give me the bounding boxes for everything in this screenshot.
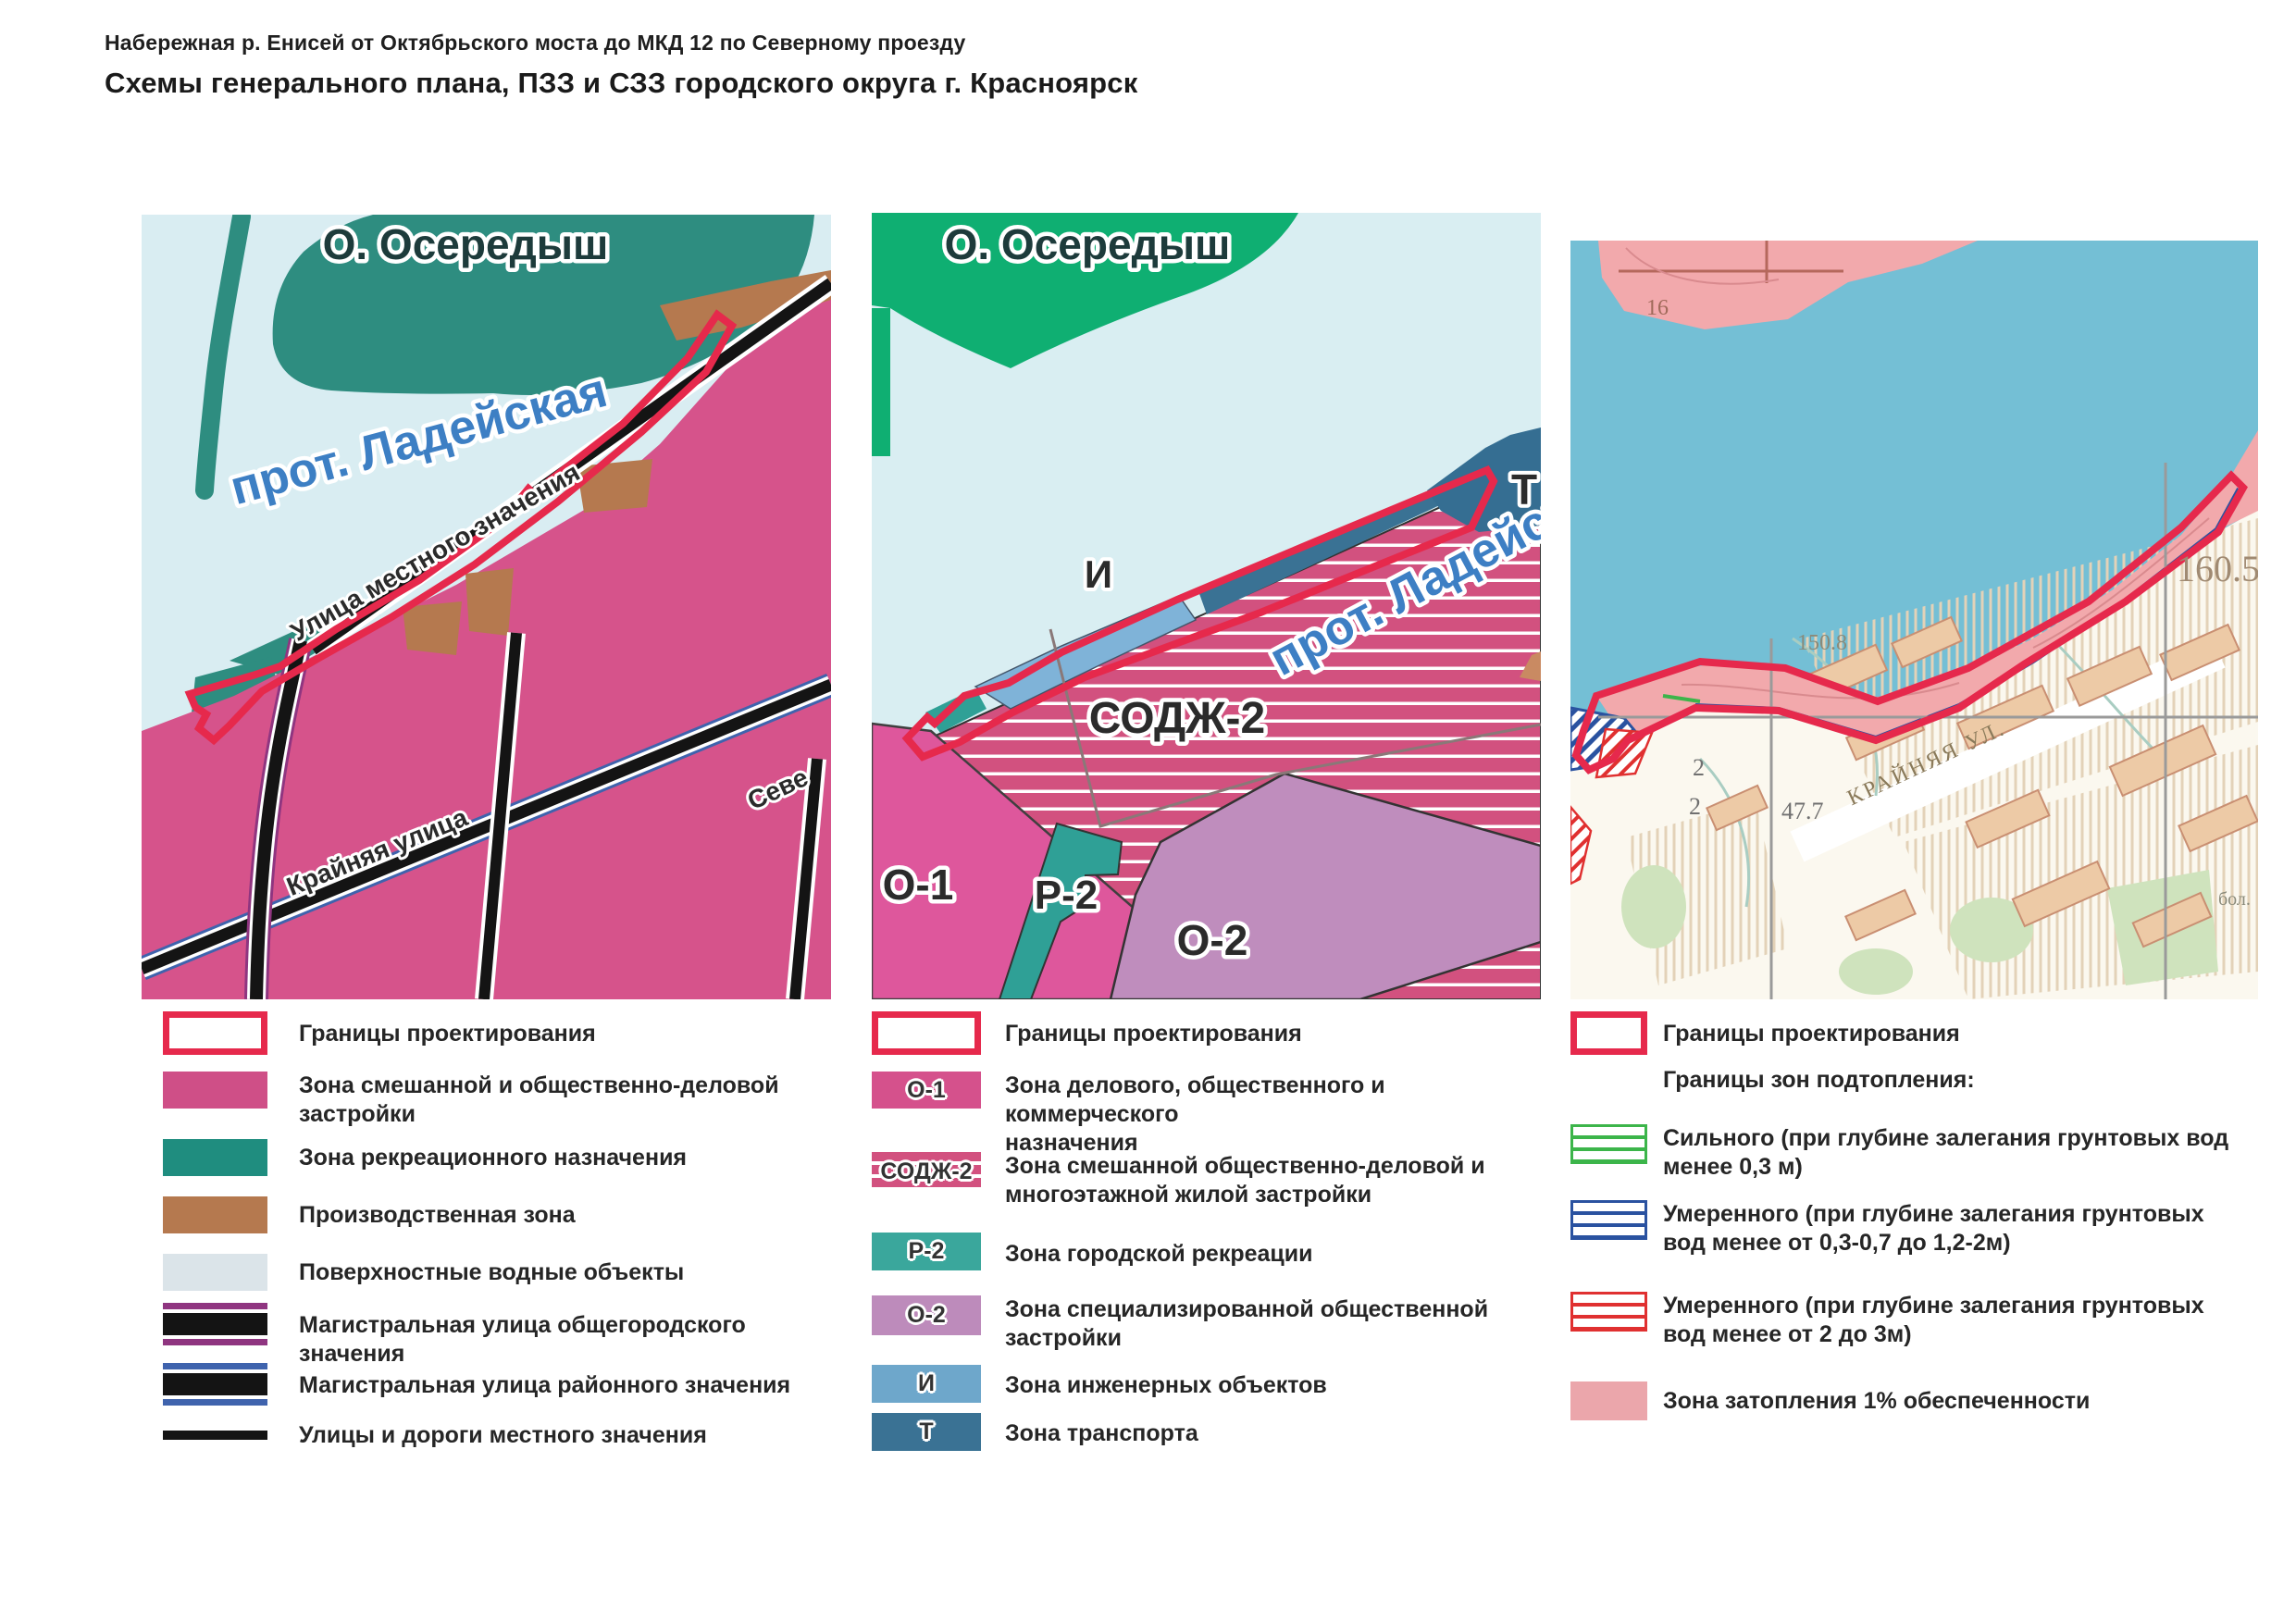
legend-label: Зона инженерных объектов bbox=[1005, 1371, 1542, 1400]
swatch-boundary bbox=[163, 1011, 267, 1055]
legend-label: Зона рекреационного назначения bbox=[299, 1144, 817, 1172]
swatch-t: Т bbox=[872, 1413, 981, 1451]
swatch-road-city bbox=[163, 1303, 267, 1345]
legend-label: Зона транспорта bbox=[1005, 1419, 1542, 1448]
legend-label: Зона смешанной общественно-деловой и мно… bbox=[1005, 1152, 1542, 1209]
page-subtitle: Набережная р. Енисей от Октябрьского мос… bbox=[105, 31, 966, 56]
mark-2b: 2 bbox=[1689, 793, 1701, 820]
swatch-moderate-flood-blue bbox=[1570, 1200, 1647, 1240]
zone-code: О-1 bbox=[907, 1077, 946, 1104]
swatch-r2: Р-2 bbox=[872, 1233, 981, 1270]
legend-label: Зона смешанной и общественно-деловой зас… bbox=[299, 1072, 817, 1129]
page-title: Схемы генерального плана, ПЗЗ и СЗЗ горо… bbox=[105, 67, 1137, 100]
zone-code: СОДЖ-2 bbox=[880, 1158, 972, 1185]
legend-label: Зона городской рекреации bbox=[1005, 1240, 1542, 1269]
zone-i-label: И bbox=[1085, 552, 1112, 596]
swatch-o2: О-2 bbox=[872, 1295, 981, 1335]
legend-label: Магистральная улица районного значения bbox=[299, 1371, 836, 1400]
map-pzz: О. Осередыш прот. Ладейская И Т СОДЖ-2 О… bbox=[872, 213, 1541, 999]
island-label: О. Осередыш bbox=[945, 220, 1231, 268]
zone-r2-label: Р-2 bbox=[1035, 873, 1098, 918]
elevation-150: 150.8 bbox=[1797, 631, 1847, 655]
legend-label: Сильного (при глубине залегания грунтовы… bbox=[1663, 1124, 2237, 1182]
zone-sodzh-label: СОДЖ-2 bbox=[1089, 694, 1265, 743]
legend-subheader: Границы зон подтопления: bbox=[1663, 1066, 2237, 1095]
elevation-47: 47.7 bbox=[1781, 798, 1824, 824]
legend-label: Зона делового, общественного и коммерчес… bbox=[1005, 1072, 1542, 1158]
swatch-strong-flood bbox=[1570, 1124, 1647, 1164]
legend-label: Зона специализированной общественной зас… bbox=[1005, 1295, 1542, 1353]
swatch-boundary bbox=[872, 1011, 981, 1055]
swatch-flood-1pct bbox=[1570, 1381, 1647, 1420]
legend-label: Магистральная улица общегородского значе… bbox=[299, 1311, 836, 1369]
zone-o2-label: О-2 bbox=[1177, 916, 1248, 964]
swatch-industrial-zone bbox=[163, 1196, 267, 1233]
swatch-o1: О-1 bbox=[872, 1072, 981, 1109]
map-szz: 160.5 150.8 47.7 КРАЙНЯЯ УЛ. 16 2 2 бол. bbox=[1570, 241, 2258, 999]
zone-code: И bbox=[918, 1370, 935, 1397]
mark-bol: бол. bbox=[2218, 889, 2251, 910]
swatch-mixed-zone bbox=[163, 1072, 267, 1109]
zone-code: О-2 bbox=[907, 1302, 946, 1329]
zone-code: Р-2 bbox=[909, 1238, 945, 1265]
legend-label: Производственная зона bbox=[299, 1201, 817, 1230]
map-genplan: О. Осередыш прот. Ладейская Улица местно… bbox=[142, 215, 831, 999]
legend-label: Улицы и дороги местного значения bbox=[299, 1421, 836, 1450]
legend-label: Зона затопления 1% обеспеченности bbox=[1663, 1387, 2237, 1416]
legend-label: Границы проектирования bbox=[1663, 1020, 2237, 1048]
swatch-recreation-zone bbox=[163, 1139, 267, 1176]
swatch-sodzh2: СОДЖ-2 bbox=[872, 1152, 981, 1191]
page: Набережная р. Енисей от Октябрьского мос… bbox=[0, 0, 2296, 1623]
swatch-moderate-flood-red bbox=[1570, 1292, 1647, 1332]
island-label: О. Осередыш bbox=[323, 220, 609, 268]
swatch-road-district bbox=[163, 1363, 267, 1406]
swatch-surface-water bbox=[163, 1254, 267, 1291]
legend-label: Умеренного (при глубине залегания грунто… bbox=[1663, 1292, 2237, 1349]
legend-label: Границы проектирования bbox=[1005, 1020, 1542, 1048]
zone-code: Т bbox=[919, 1419, 933, 1445]
mark-2a: 2 bbox=[1693, 754, 1705, 781]
legend-label: Поверхностные водные объекты bbox=[299, 1258, 817, 1287]
elevation-160: 160.5 bbox=[2177, 548, 2258, 589]
zone-o1-label: О-1 bbox=[883, 861, 954, 909]
legend-label: Границы проектирования bbox=[299, 1020, 817, 1048]
zone-t-label: Т bbox=[1511, 465, 1537, 514]
swatch-boundary bbox=[1570, 1011, 1647, 1055]
mark-16: 16 bbox=[1646, 296, 1669, 320]
legend-label: Умеренного (при глубине залегания грунто… bbox=[1663, 1200, 2237, 1258]
swatch-road-local bbox=[163, 1431, 267, 1440]
swatch-i: И bbox=[872, 1365, 981, 1403]
